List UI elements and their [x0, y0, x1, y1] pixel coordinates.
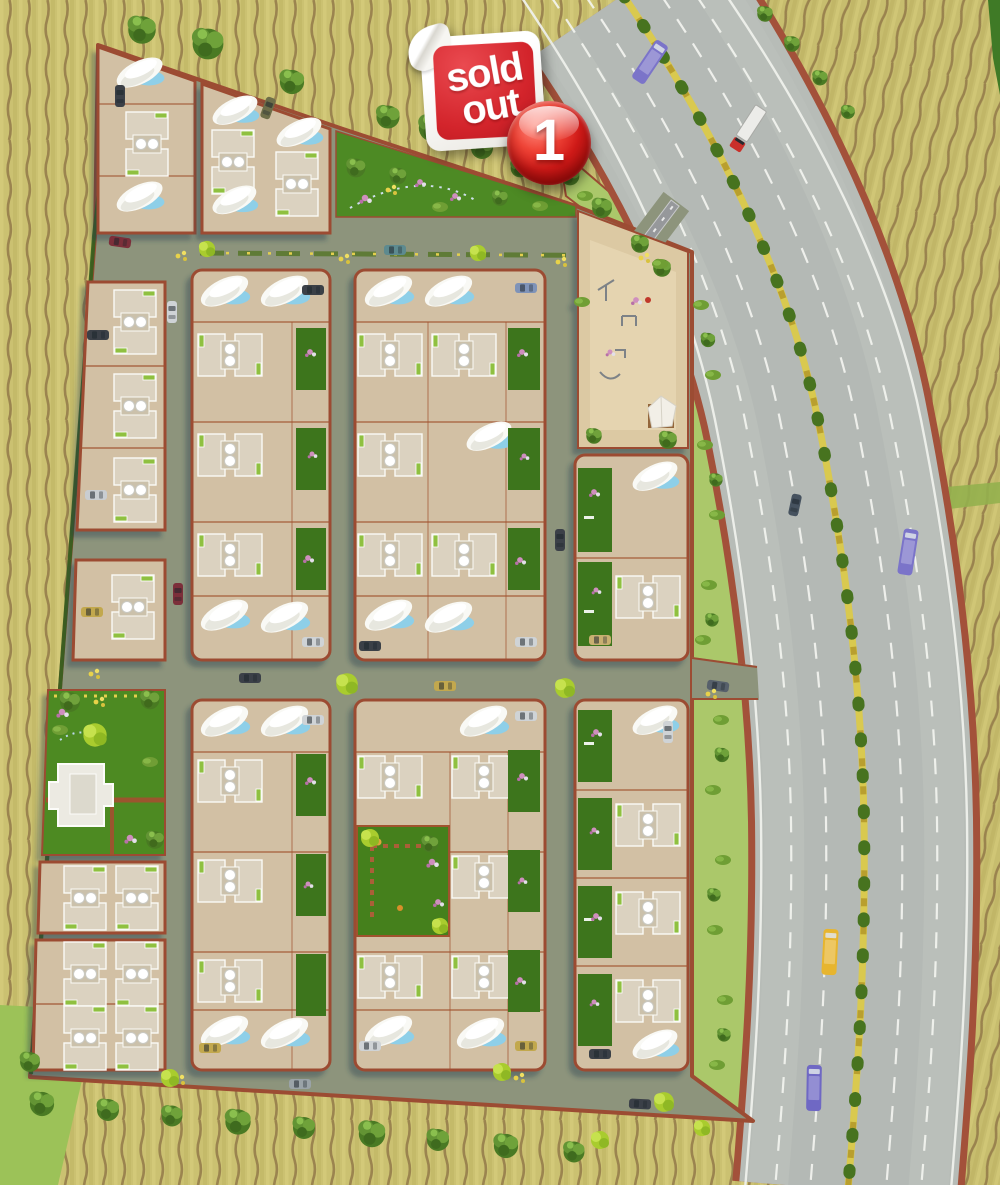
residential-block-a4	[33, 940, 165, 1070]
car	[302, 637, 324, 647]
tree	[199, 241, 215, 257]
car	[81, 607, 103, 617]
tree	[694, 1120, 710, 1136]
car	[515, 283, 537, 293]
garden-plot	[578, 562, 612, 646]
clubhouse-park	[42, 690, 165, 855]
car	[87, 330, 109, 340]
car	[359, 641, 381, 651]
site-master-plan: sold out 1	[0, 0, 1000, 1185]
site-plan-rendering	[0, 0, 1000, 1185]
residential-block-a3	[38, 862, 165, 933]
car	[173, 583, 183, 605]
tree	[361, 829, 379, 847]
residential-block-d2	[575, 699, 688, 1070]
car	[85, 490, 107, 500]
phase-marker-number: 1	[533, 107, 565, 174]
residential-block-t1	[98, 47, 195, 233]
residential-block-b2	[192, 699, 330, 1070]
playground	[574, 211, 688, 449]
garden-plot	[296, 328, 326, 390]
tree	[470, 245, 486, 261]
car	[302, 285, 324, 295]
tree	[654, 1092, 674, 1112]
tree	[555, 678, 575, 698]
bus	[806, 1065, 822, 1111]
residential-block-a1	[77, 282, 165, 530]
bush	[142, 757, 158, 767]
car	[199, 1043, 221, 1053]
residential-block-c2	[355, 699, 545, 1070]
tree	[83, 723, 106, 746]
garden-plot	[296, 954, 326, 1016]
bush	[432, 202, 448, 212]
garden-plot	[508, 328, 540, 390]
car	[167, 301, 177, 323]
car	[515, 637, 537, 647]
car	[384, 245, 406, 255]
residential-block-c1	[355, 269, 545, 660]
school-bus	[821, 929, 838, 976]
garden-plot	[508, 528, 540, 590]
bush	[52, 725, 68, 735]
car	[515, 711, 537, 721]
car	[589, 1049, 611, 1059]
tree	[336, 673, 358, 695]
garden-plot	[296, 754, 326, 816]
garden-plot	[296, 428, 326, 490]
car	[555, 529, 565, 551]
garden-plot	[578, 468, 612, 552]
garden-plot	[578, 886, 612, 958]
tree	[161, 1069, 179, 1087]
bush	[532, 201, 548, 211]
tree	[432, 918, 448, 934]
residential-block-d1	[575, 455, 688, 660]
car	[302, 715, 324, 725]
garden-plot	[578, 798, 612, 870]
car	[589, 635, 611, 645]
garden-plot	[578, 710, 612, 782]
garden-plot	[508, 428, 540, 490]
car	[239, 673, 261, 683]
car	[115, 85, 125, 107]
car	[663, 721, 673, 743]
car	[289, 1079, 311, 1089]
garden-plot	[578, 974, 612, 1046]
tree	[591, 1131, 609, 1149]
car	[515, 1041, 537, 1051]
residential-block-a2	[73, 560, 165, 660]
garden-plot	[508, 750, 540, 812]
phase-marker-button[interactable]: 1	[507, 101, 591, 185]
clubhouse-building	[49, 764, 113, 826]
residential-block-b1	[192, 269, 330, 660]
tree	[493, 1063, 511, 1081]
bush	[574, 297, 590, 307]
car	[434, 681, 456, 691]
pocket-park	[357, 826, 449, 936]
car	[359, 1041, 381, 1051]
car	[629, 1098, 651, 1109]
